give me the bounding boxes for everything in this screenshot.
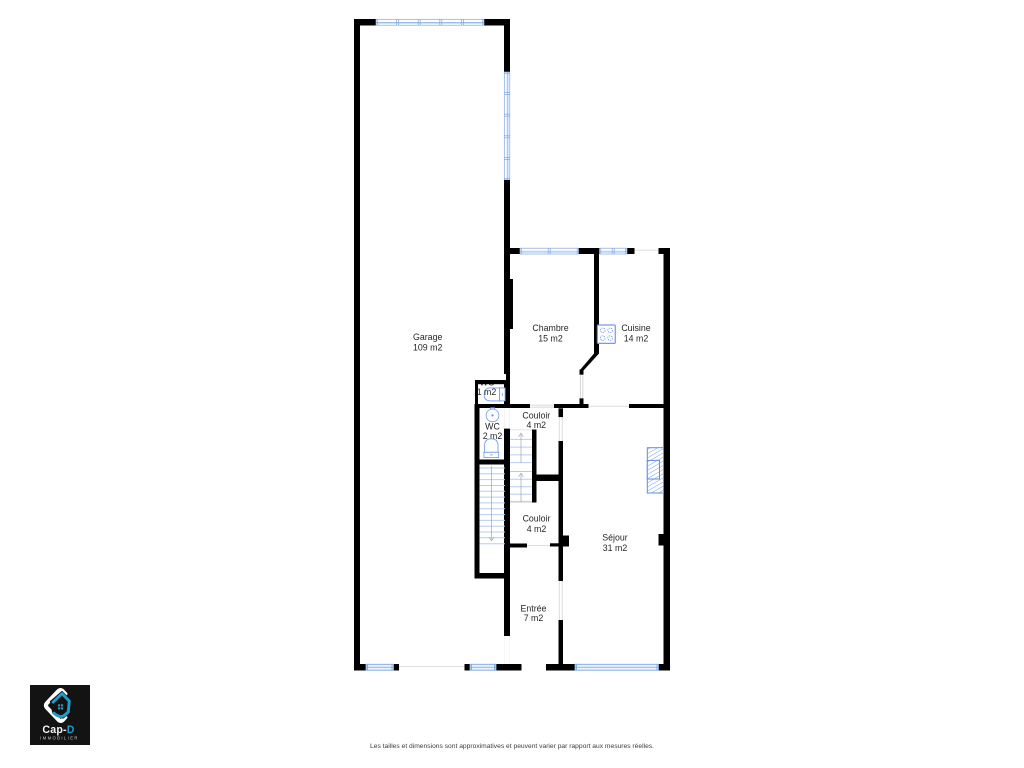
svg-text:Entrée: Entrée <box>521 603 547 613</box>
svg-text:Cap-D: Cap-D <box>42 724 74 736</box>
svg-text:4 m2: 4 m2 <box>527 524 547 534</box>
svg-text:Cuisine: Cuisine <box>621 323 650 333</box>
svg-text:IMMOBILIER: IMMOBILIER <box>40 736 79 741</box>
svg-text:15 m2: 15 m2 <box>538 333 563 343</box>
svg-text:Chambre: Chambre <box>532 323 568 333</box>
svg-text:109 m2: 109 m2 <box>413 342 442 352</box>
svg-text:Garage: Garage <box>413 332 442 342</box>
svg-text:1 m2: 1 m2 <box>477 387 497 397</box>
svg-text:31 m2: 31 m2 <box>603 543 628 553</box>
svg-text:Couloir: Couloir <box>523 513 551 523</box>
svg-text:Couloir: Couloir <box>522 411 550 421</box>
svg-text:7 m2: 7 m2 <box>524 613 544 623</box>
svg-text:14 m2: 14 m2 <box>624 333 649 343</box>
svg-text:Séjour: Séjour <box>602 533 627 543</box>
svg-text:4 m2: 4 m2 <box>527 420 547 430</box>
